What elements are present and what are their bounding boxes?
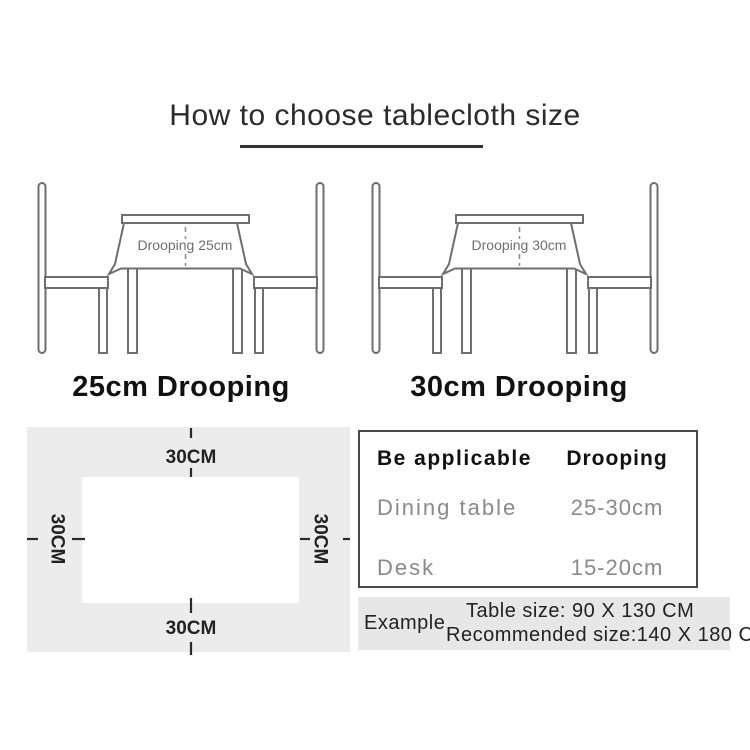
scene-caption-25: 25cm Drooping	[28, 371, 334, 404]
drooping-spec-table: Be applicable Drooping Dining table 25-3…	[358, 430, 698, 588]
page-title: How to choose tablecloth size	[0, 99, 750, 133]
spec-row-dining-value: 25-30cm	[556, 495, 678, 521]
table-scene-illustration: Drooping 25cm	[28, 177, 334, 359]
scene-drooping-25: Drooping 25cm	[28, 177, 334, 359]
spec-header-applicable: Be applicable	[377, 447, 532, 471]
scene-caption-30: 30cm Drooping	[366, 371, 672, 404]
right-chair	[588, 183, 658, 353]
tablecloth-size-diagram: 30CM 30CM 30CM 30CM	[27, 427, 350, 655]
table-scene-illustration: Drooping 30cm	[362, 177, 668, 359]
spec-row-dining-name: Dining table	[377, 495, 517, 521]
left-chair	[373, 183, 443, 353]
drooping-label: Drooping 30cm	[472, 237, 567, 253]
dimension-label-left: 30CM	[46, 514, 67, 565]
spec-row-desk-value: 15-20cm	[556, 555, 678, 581]
drooping-label: Drooping 25cm	[138, 237, 233, 253]
infographic-page: How to choose tablecloth size	[0, 0, 750, 750]
example-table-size: Table size: 90 X 130 CM	[466, 600, 694, 623]
example-recommended-size: Recommended size:140 X 180 CM	[446, 624, 750, 647]
right-chair	[254, 183, 324, 353]
title-underline	[240, 145, 483, 148]
example-label: Example	[364, 612, 445, 635]
dimension-label-right: 30CM	[309, 514, 330, 565]
scene-drooping-30: Drooping 30cm	[362, 177, 668, 359]
tabletop-area	[82, 477, 299, 603]
example-box: Example Table size: 90 X 130 CM Recommen…	[358, 597, 730, 650]
spec-header-drooping: Drooping	[556, 447, 678, 471]
left-chair	[39, 183, 109, 353]
spec-row-desk-name: Desk	[377, 555, 435, 581]
dimension-label-bottom: 30CM	[166, 618, 217, 639]
dimension-label-top: 30CM	[166, 447, 217, 468]
